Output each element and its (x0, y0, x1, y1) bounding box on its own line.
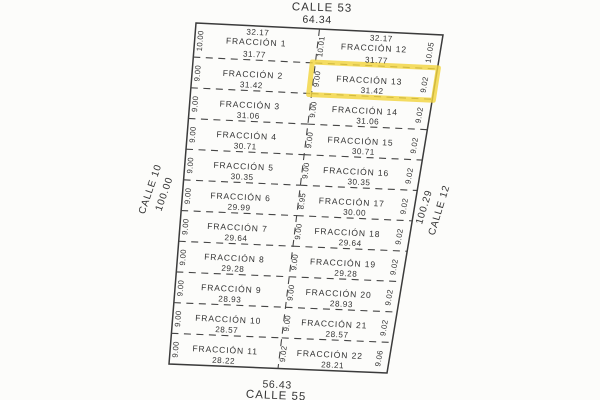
fraction-width: 31.77 (365, 55, 388, 65)
side-dimension-left: 9.00 (171, 341, 181, 358)
fraction-label: FRACCIÓN 3 (219, 99, 280, 112)
fraction-label: FRACCIÓN 7 (207, 221, 268, 234)
side-dimension-middle: 8.95 (297, 192, 308, 210)
street-top-length: 64.34 (302, 14, 332, 27)
side-dimension-middle: 9.00 (285, 284, 296, 302)
side-dimension-right: 9.02 (388, 258, 400, 276)
plat-geometry: 32.17FRACCIÓN 131.7710.00FRACCIÓN 231.42… (169, 23, 443, 373)
fraction-label: FRACCIÓN 21 (301, 317, 368, 330)
fraction-label: FRACCIÓN 18 (314, 226, 381, 239)
side-dimension-right: 9.02 (383, 289, 395, 307)
fraction-width: 30.00 (343, 208, 366, 218)
fraction-width: 30.35 (347, 177, 370, 187)
fraction-label: FRACCIÓN 2 (222, 68, 283, 81)
side-dimension-middle: 9.00 (304, 131, 315, 149)
fraction-width: 31.06 (237, 111, 260, 121)
fraction-width: 30.71 (233, 141, 256, 151)
side-dimension-left: 10.00 (195, 30, 206, 52)
side-dimension-middle: 9.00 (308, 100, 319, 118)
fraction-label: FRACCIÓN 10 (195, 313, 262, 326)
fraction-label: FRACCIÓN 22 (297, 348, 364, 361)
fraction-label: FRACCIÓN 11 (192, 343, 258, 356)
fraction-label: FRACCIÓN 6 (210, 190, 271, 203)
side-dimension-left: 9.00 (185, 156, 195, 173)
side-dimension-middle: 9.00 (312, 70, 323, 88)
street-top-name: CALLE 53 (292, 1, 353, 15)
side-dimension-left: 9.00 (180, 218, 190, 235)
fraction-label: FRACCIÓN 16 (323, 165, 390, 178)
fraction-width: 28.93 (218, 294, 241, 304)
fraction-width: 29.64 (224, 233, 247, 243)
fraction-label: FRACCIÓN 20 (305, 287, 372, 300)
plat-diagram: 32.17FRACCIÓN 131.7710.00FRACCIÓN 231.42… (0, 0, 600, 400)
fraction-width: 28.21 (321, 360, 344, 370)
fraction-label: FRACCIÓN 8 (204, 252, 265, 265)
side-dimension-right: 9.02 (378, 319, 390, 337)
side-dimension-left: 9.00 (192, 64, 202, 81)
fraction-width: 30.35 (230, 172, 253, 182)
fraction-width: 29.28 (334, 269, 357, 279)
fraction-width: 28.57 (215, 325, 238, 335)
side-dimension-middle: 9.00 (282, 314, 293, 332)
side-dimension-right: 9.02 (414, 106, 426, 124)
fraction-width: 30.71 (352, 147, 375, 157)
fraction-width: 31.06 (356, 116, 379, 126)
side-dimension-middle: 9.00 (300, 162, 311, 180)
fraction-label: FRACCIÓN 15 (327, 135, 394, 148)
fraction-label: FRACCIÓN 17 (319, 195, 386, 208)
side-dimension-middle: 9.00 (289, 253, 300, 271)
side-dimension-left: 9.00 (183, 187, 193, 204)
side-dimension-right: 9.02 (393, 228, 405, 246)
fraction-label: FRACCIÓN 1 (226, 36, 287, 49)
side-dimension-left: 9.00 (173, 310, 183, 327)
fraction-label: FRACCIÓN 19 (310, 256, 377, 269)
fraction-width: 29.28 (221, 264, 244, 274)
side-dimension-left: 9.00 (188, 126, 198, 143)
fraction-width: 31.42 (360, 86, 383, 96)
side-dimension-middle: 9.02 (278, 345, 289, 362)
side-dimension-left: 9.00 (190, 95, 200, 112)
side-dimension-right: 9.06 (373, 350, 385, 368)
fraction-width: 31.42 (240, 80, 263, 90)
fraction-width: 29.64 (338, 238, 361, 248)
side-dimension-middle: 9.00 (293, 223, 304, 241)
fraction-label: FRACCIÓN 4 (216, 129, 277, 142)
plat-scan: 32.17FRACCIÓN 131.7710.00FRACCIÓN 231.42… (0, 0, 600, 400)
fraction-label: FRACCIÓN 12 (341, 41, 408, 54)
side-dimension-right: 9.02 (404, 167, 416, 185)
side-dimension-left: 9.00 (178, 249, 188, 266)
fraction-label: FRACCIÓN 9 (201, 282, 262, 295)
fraction-label: FRACCIÓN 13 (336, 74, 403, 87)
side-dimension-right: 9.02 (398, 197, 410, 215)
street-bottom-name: CALLE 55 (246, 389, 307, 400)
fraction-width: 28.93 (330, 299, 353, 309)
fraction-width: 28.22 (212, 356, 235, 366)
fraction-label: FRACCIÓN 14 (332, 104, 399, 117)
side-dimension-right: 10.05 (424, 41, 436, 64)
fraction-width: 31.77 (243, 49, 266, 59)
side-dimension-middle: 10.01 (315, 36, 326, 58)
fraction-label: FRACCIÓN 5 (213, 160, 274, 173)
fraction-width: 28.57 (325, 330, 348, 340)
side-dimension-left: 9.00 (175, 279, 185, 296)
side-dimension-right: 9.02 (409, 137, 421, 155)
side-dimension-right: 9.02 (419, 76, 431, 94)
fraction-width: 29.99 (227, 203, 250, 213)
